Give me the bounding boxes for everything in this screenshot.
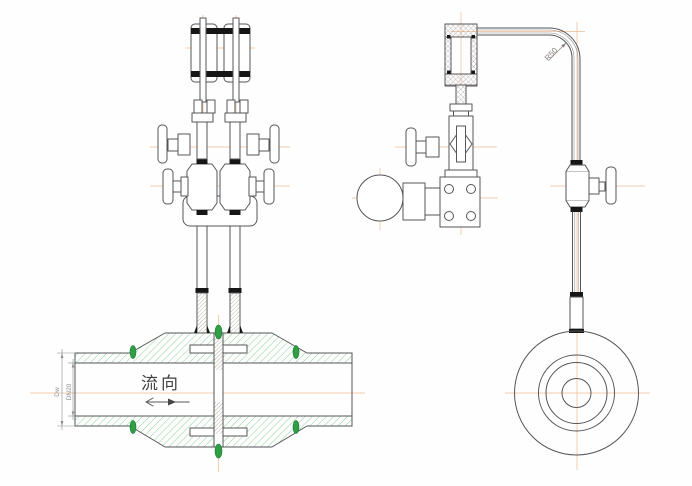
dimension-annotations: Dw DN20 bbox=[54, 349, 75, 430]
front-view: Dw DN20 流向 bbox=[30, 15, 365, 472]
handwheel bbox=[406, 128, 439, 166]
flow-direction-label: 流向 bbox=[141, 374, 181, 394]
manifold-flange-block bbox=[440, 177, 480, 227]
weld-symbol bbox=[215, 325, 222, 339]
valve-stem bbox=[200, 18, 206, 102]
technical-drawing-canvas: Dw DN20 流向 bbox=[0, 0, 692, 486]
weld-symbol bbox=[130, 346, 136, 359]
weld-symbol bbox=[130, 421, 136, 434]
bend-radius-annotation: R50 bbox=[543, 43, 566, 63]
valve-stem bbox=[233, 18, 239, 102]
weld-symbol bbox=[293, 346, 299, 359]
pressure-gauge bbox=[357, 175, 440, 221]
flow-direction: 流向 bbox=[141, 374, 189, 406]
needle-valve-side bbox=[406, 85, 477, 177]
flow-direction-arrow bbox=[146, 398, 189, 406]
bend-radius-label: R50 bbox=[543, 45, 560, 62]
handwheel bbox=[589, 167, 616, 204]
bore-diameter-label: DN20 bbox=[66, 383, 73, 400]
orifice-flowmeter-drawing: Dw DN20 流向 bbox=[0, 0, 692, 486]
weld-symbol bbox=[215, 444, 222, 458]
outer-diameter-label: Dw bbox=[54, 387, 61, 397]
side-view: R50 bbox=[352, 12, 650, 470]
handwheel bbox=[247, 125, 279, 163]
weld-symbol bbox=[293, 421, 299, 434]
riser-pipe-valve bbox=[566, 160, 616, 333]
overhead-pipe-elbow bbox=[477, 28, 580, 160]
handwheel bbox=[158, 125, 190, 163]
valve-body bbox=[220, 164, 250, 210]
gauge-body bbox=[357, 175, 403, 221]
side-centerlines bbox=[352, 12, 650, 470]
twin-needle-valves bbox=[158, 18, 279, 226]
valve-body bbox=[187, 164, 217, 210]
